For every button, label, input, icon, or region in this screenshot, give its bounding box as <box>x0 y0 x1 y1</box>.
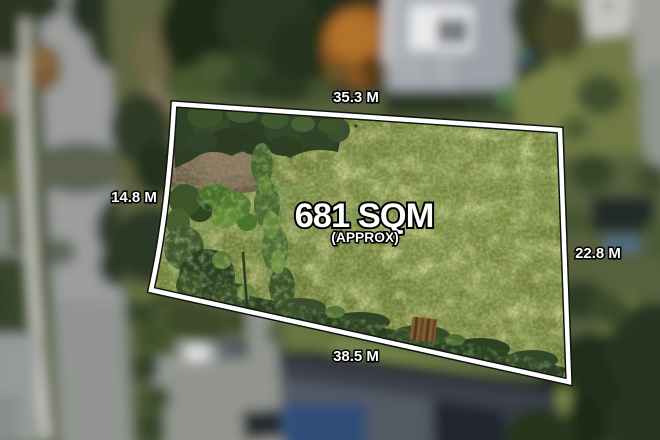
svg-text:(APPROX): (APPROX) <box>331 230 398 245</box>
svg-text:22.8 M: 22.8 M <box>575 245 621 262</box>
svg-text:38.5 M: 38.5 M <box>333 348 379 365</box>
svg-text:14.8 M: 14.8 M <box>111 189 157 206</box>
svg-text:35.3 M: 35.3 M <box>333 89 379 106</box>
